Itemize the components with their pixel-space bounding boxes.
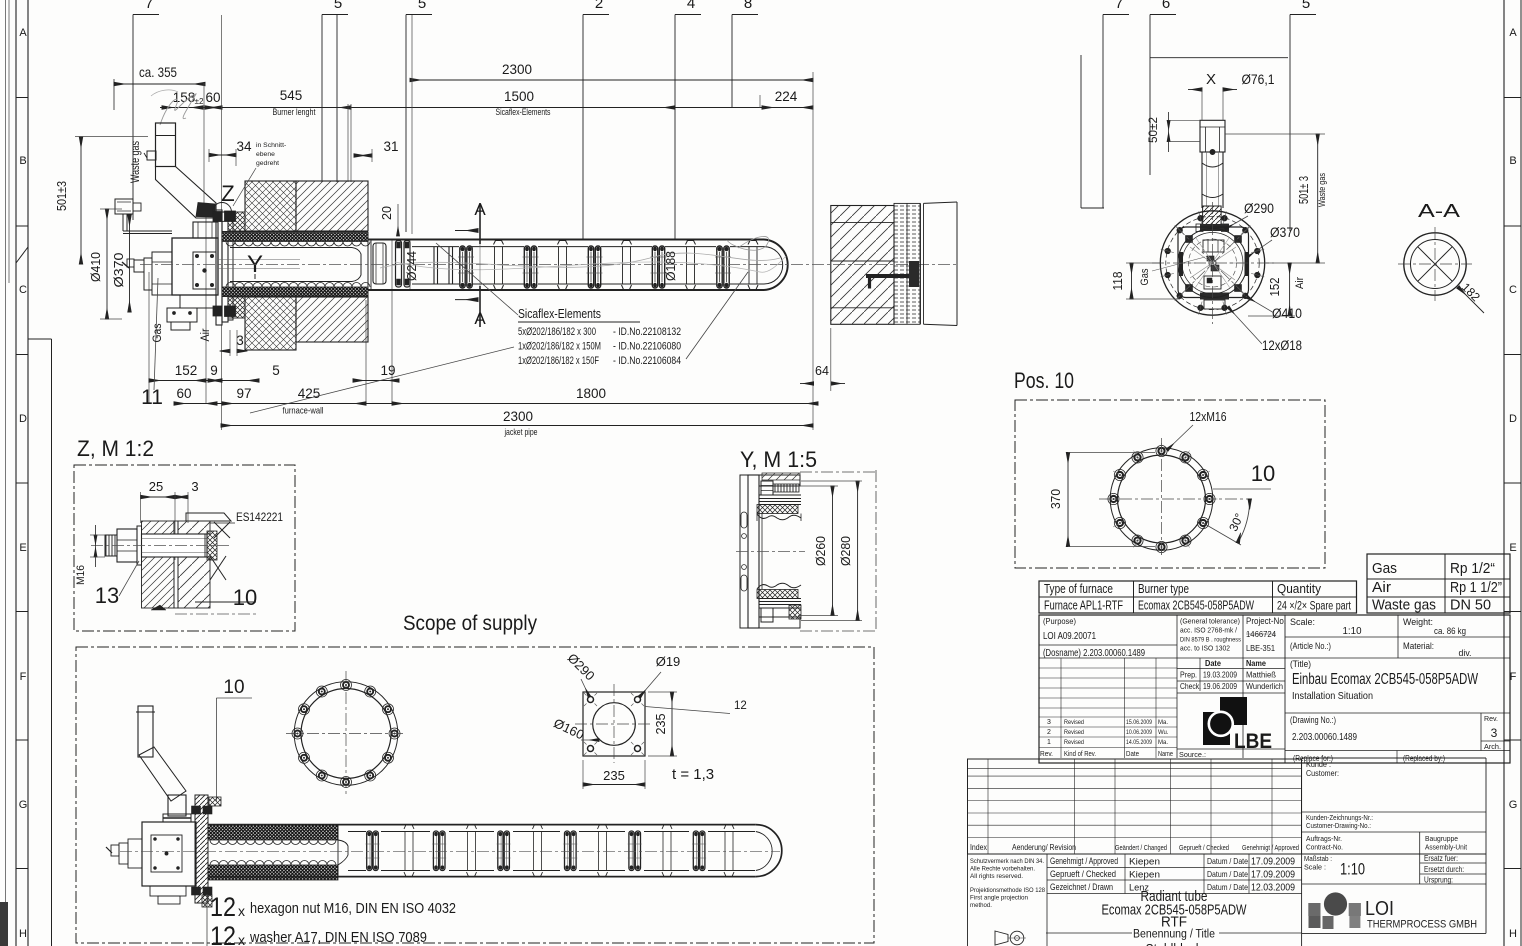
svg-text:Geprueft / Checked: Geprueft / Checked bbox=[1179, 843, 1229, 852]
svg-text:Wunderlich: Wunderlich bbox=[1246, 682, 1283, 691]
svg-text:12.03.2009: 12.03.2009 bbox=[1251, 883, 1295, 894]
svg-text:5: 5 bbox=[1302, 0, 1310, 12]
svg-text:Gas: Gas bbox=[1372, 560, 1397, 577]
svg-text:Kunde :: Kunde : bbox=[1306, 760, 1331, 769]
svg-text:17.09.2009: 17.09.2009 bbox=[1251, 870, 1295, 881]
svg-text:Prep.: Prep. bbox=[1180, 671, 1197, 680]
svg-text:Date: Date bbox=[1205, 658, 1221, 668]
svg-text:t = 1,3: t = 1,3 bbox=[672, 766, 714, 783]
svg-text:6: 6 bbox=[1162, 0, 1170, 12]
svg-text:ES142221: ES142221 bbox=[236, 510, 283, 524]
svg-text:12: 12 bbox=[210, 921, 236, 946]
svg-text:10: 10 bbox=[233, 585, 257, 610]
svg-text:3: 3 bbox=[191, 479, 198, 494]
svg-text:LBE-351: LBE-351 bbox=[1246, 643, 1275, 653]
svg-text:Geändert / Changed: Geändert / Changed bbox=[1115, 843, 1167, 852]
svg-text:235: 235 bbox=[603, 768, 625, 783]
svg-text:G: G bbox=[19, 799, 28, 811]
svg-text:D: D bbox=[1509, 413, 1517, 425]
svg-text:Quantity: Quantity bbox=[1277, 581, 1321, 596]
svg-text:Ursprung:: Ursprung: bbox=[1424, 875, 1453, 885]
svg-text:Scale:: Scale: bbox=[1290, 617, 1315, 627]
svg-text:5: 5 bbox=[334, 0, 342, 12]
svg-text:THERMPROCESS GMBH: THERMPROCESS GMBH bbox=[1367, 919, 1477, 931]
svg-text:furnace-wall: furnace-wall bbox=[283, 406, 324, 417]
svg-text:24 ×/2× Spare part: 24 ×/2× Spare part bbox=[1277, 601, 1352, 613]
svg-text:Matthieß: Matthieß bbox=[1246, 671, 1276, 680]
svg-text:12: 12 bbox=[210, 892, 236, 922]
svg-text:152: 152 bbox=[1268, 277, 1282, 296]
svg-text:235: 235 bbox=[653, 714, 668, 735]
svg-text:Stahlblech: Stahlblech bbox=[1146, 941, 1203, 946]
svg-text:1: 1 bbox=[1047, 739, 1051, 746]
svg-text:224: 224 bbox=[775, 89, 798, 104]
svg-text:x: x bbox=[238, 932, 245, 946]
svg-text:Benennung / Title: Benennung / Title bbox=[1133, 929, 1215, 941]
svg-text:Rev.: Rev. bbox=[1484, 714, 1498, 723]
svg-text:11: 11 bbox=[141, 386, 163, 409]
svg-text:- ID.No.22106080: - ID.No.22106080 bbox=[613, 341, 681, 353]
svg-text:Burner type: Burner type bbox=[1138, 581, 1189, 596]
svg-text:2: 2 bbox=[1047, 729, 1051, 736]
svg-text:10.06.2009: 10.06.2009 bbox=[1126, 730, 1153, 736]
svg-text:Ø370: Ø370 bbox=[1270, 225, 1300, 240]
svg-text:12xØ18: 12xØ18 bbox=[1262, 338, 1302, 353]
svg-text:4: 4 bbox=[687, 0, 695, 12]
svg-text:20: 20 bbox=[380, 206, 394, 220]
svg-text:17.09.2009: 17.09.2009 bbox=[1251, 857, 1295, 868]
svg-text:A: A bbox=[474, 309, 486, 328]
svg-text:H: H bbox=[19, 928, 27, 940]
svg-text:F: F bbox=[20, 671, 27, 683]
svg-text:First angle projection: First angle projection bbox=[970, 895, 1029, 902]
svg-text:Installation Situation: Installation Situation bbox=[1292, 690, 1373, 702]
svg-text:31: 31 bbox=[383, 139, 398, 154]
svg-text:(Title): (Title) bbox=[1290, 659, 1311, 669]
svg-text:Waste gas: Waste gas bbox=[130, 141, 142, 183]
svg-text:13: 13 bbox=[95, 583, 119, 608]
svg-text:501± 3: 501± 3 bbox=[1297, 176, 1311, 204]
svg-text:5: 5 bbox=[272, 363, 280, 378]
svg-text:ca. 355: ca. 355 bbox=[139, 64, 177, 80]
svg-text:Ø244: Ø244 bbox=[405, 251, 419, 281]
svg-text:Kiepen: Kiepen bbox=[1129, 857, 1160, 868]
svg-text:Ø410: Ø410 bbox=[88, 252, 103, 282]
svg-text:Name: Name bbox=[1158, 749, 1173, 758]
svg-text:Revised: Revised bbox=[1064, 730, 1084, 736]
svg-text:10: 10 bbox=[1251, 461, 1275, 486]
svg-text:Weight:: Weight: bbox=[1403, 617, 1433, 627]
svg-text:G: G bbox=[1509, 799, 1518, 811]
svg-text:12xM16: 12xM16 bbox=[1190, 410, 1227, 424]
svg-text:Gas: Gas bbox=[152, 323, 164, 342]
svg-text:div.: div. bbox=[1459, 648, 1472, 659]
svg-text:Ersetzt durch:: Ersetzt durch: bbox=[1424, 864, 1464, 874]
svg-text:Scope of supply: Scope of supply bbox=[403, 612, 537, 635]
svg-text:A-A: A-A bbox=[1418, 201, 1460, 221]
svg-text:Ersatz fuer:: Ersatz fuer: bbox=[1424, 853, 1458, 863]
svg-text:2300: 2300 bbox=[502, 62, 532, 77]
svg-text:14.05.2009: 14.05.2009 bbox=[1126, 740, 1153, 746]
svg-text:- ID.No.22108132: - ID.No.22108132 bbox=[613, 326, 681, 338]
svg-text:19: 19 bbox=[380, 363, 395, 378]
svg-text:5xØ202/186/182 x 300: 5xØ202/186/182 x 300 bbox=[518, 326, 596, 338]
svg-text:Wu.: Wu. bbox=[1158, 730, 1169, 736]
svg-text:25: 25 bbox=[149, 479, 163, 494]
svg-text:118: 118 bbox=[1111, 271, 1125, 290]
svg-text:Aenderung/ Revision: Aenderung/ Revision bbox=[1012, 843, 1076, 852]
svg-text:D: D bbox=[19, 413, 27, 425]
svg-text:1xØ202/186/182 x 150M: 1xØ202/186/182 x 150M bbox=[518, 341, 601, 353]
svg-text:Customer-Drawing-No.:: Customer-Drawing-No.: bbox=[1306, 823, 1371, 830]
svg-text:Type of furnace: Type of furnace bbox=[1044, 581, 1113, 596]
svg-text:19.06.2009: 19.06.2009 bbox=[1203, 682, 1237, 691]
svg-text:acc. to ISO 1302: acc. to ISO 1302 bbox=[1180, 644, 1230, 653]
svg-text:Ø76,1: Ø76,1 bbox=[1242, 72, 1275, 87]
svg-text:gedreht: gedreht bbox=[256, 160, 279, 167]
svg-text:ca. 86 kg: ca. 86 kg bbox=[1434, 626, 1466, 637]
svg-text:Datum / Date: Datum / Date bbox=[1207, 882, 1248, 892]
svg-text:Waste gas: Waste gas bbox=[1372, 597, 1436, 614]
svg-text:C: C bbox=[1509, 284, 1517, 296]
svg-text:1xØ202/186/182 x 150F: 1xØ202/186/182 x 150F bbox=[518, 355, 599, 367]
svg-text:Ø410: Ø410 bbox=[1272, 306, 1302, 321]
svg-text:60: 60 bbox=[205, 90, 220, 105]
svg-text:hexagon nut M16, DIN EN ISO 40: hexagon nut M16, DIN EN ISO 4032 bbox=[250, 900, 456, 917]
svg-text:97: 97 bbox=[236, 386, 251, 401]
svg-text:Date: Date bbox=[1126, 749, 1139, 758]
svg-text:9: 9 bbox=[210, 363, 218, 378]
svg-text:Ma.: Ma. bbox=[1158, 740, 1168, 746]
svg-text:Projektionsmethode ISO 128: Projektionsmethode ISO 128 bbox=[970, 887, 1046, 894]
svg-text:Air: Air bbox=[1294, 277, 1306, 289]
svg-text:A: A bbox=[19, 27, 27, 39]
svg-text:1:10: 1:10 bbox=[1340, 860, 1365, 879]
svg-text:Project-No.: Project-No. bbox=[1246, 616, 1286, 626]
svg-text:1500: 1500 bbox=[504, 89, 534, 104]
svg-text:10: 10 bbox=[223, 677, 244, 698]
svg-text:7: 7 bbox=[145, 0, 153, 12]
svg-text:1:10: 1:10 bbox=[1343, 625, 1362, 637]
svg-text:3: 3 bbox=[1491, 726, 1498, 740]
svg-text:152: 152 bbox=[175, 363, 198, 378]
svg-text:(Article No.:): (Article No.:) bbox=[1290, 641, 1331, 651]
svg-text:Material:: Material: bbox=[1403, 641, 1434, 651]
svg-text:3: 3 bbox=[1047, 719, 1051, 726]
svg-text:Geprueft / Checked: Geprueft / Checked bbox=[1050, 869, 1116, 879]
svg-text:Ø370: Ø370 bbox=[111, 253, 126, 288]
svg-text:E: E bbox=[1509, 542, 1516, 554]
svg-text:Assembly-Unit: Assembly-Unit bbox=[1425, 843, 1468, 852]
svg-text:Genehmigt / Approved: Genehmigt / Approved bbox=[1050, 856, 1118, 866]
svg-text:(Drawing No.:): (Drawing No.:) bbox=[1290, 715, 1336, 725]
svg-text:Y, M 1:5: Y, M 1:5 bbox=[740, 447, 817, 472]
svg-text:Kunden-Zeichnungs-Nr.:: Kunden-Zeichnungs-Nr.: bbox=[1306, 815, 1373, 822]
svg-text:Ø280: Ø280 bbox=[838, 536, 853, 566]
svg-text:DN 50: DN 50 bbox=[1450, 598, 1491, 614]
svg-text:Ø290: Ø290 bbox=[1244, 201, 1274, 216]
svg-text:19.03.2009: 19.03.2009 bbox=[1203, 671, 1237, 680]
svg-text:60: 60 bbox=[176, 386, 191, 401]
svg-text:LOI: LOI bbox=[1365, 898, 1394, 920]
svg-text:Furnace APL1-RTF: Furnace APL1-RTF bbox=[1044, 598, 1123, 613]
svg-text:(General tolerance): (General tolerance) bbox=[1180, 617, 1240, 626]
svg-text:1800: 1800 bbox=[576, 386, 606, 401]
svg-text:Datum / Date: Datum / Date bbox=[1207, 869, 1248, 879]
svg-text:jacket pipe: jacket pipe bbox=[504, 427, 538, 438]
svg-text:8: 8 bbox=[744, 0, 752, 12]
svg-text:M16: M16 bbox=[75, 565, 87, 585]
svg-text:washer A17, DIN EN ISO 7089: washer A17, DIN EN ISO 7089 bbox=[249, 929, 427, 946]
svg-text:12: 12 bbox=[734, 700, 747, 712]
svg-text:Burner lenght: Burner lenght bbox=[273, 107, 316, 118]
svg-text:method.: method. bbox=[970, 902, 992, 909]
svg-text:- ID.No.22106084: - ID.No.22106084 bbox=[613, 355, 681, 367]
svg-text:Index: Index bbox=[970, 843, 987, 852]
svg-text:in Schnitt-: in Schnitt- bbox=[256, 142, 286, 149]
svg-text:545: 545 bbox=[280, 88, 303, 103]
svg-text:Ø260: Ø260 bbox=[813, 536, 828, 566]
svg-text:501±3: 501±3 bbox=[54, 181, 69, 211]
svg-text:Z: Z bbox=[221, 181, 234, 206]
svg-text:370: 370 bbox=[1048, 489, 1063, 509]
svg-text:Ma.: Ma. bbox=[1158, 720, 1168, 726]
svg-text:(Dosname) 2.203.00060.1489: (Dosname) 2.203.00060.1489 bbox=[1043, 648, 1145, 659]
svg-text:Revised: Revised bbox=[1064, 720, 1084, 726]
svg-text:Kiepen: Kiepen bbox=[1129, 870, 1160, 881]
svg-text:Rp 1/2“: Rp 1/2“ bbox=[1450, 561, 1495, 577]
svg-text:Rp 1 1/2”: Rp 1 1/2” bbox=[1450, 580, 1502, 596]
svg-text:X: X bbox=[1206, 71, 1216, 88]
svg-text:64: 64 bbox=[815, 364, 829, 378]
svg-text:Check.: Check. bbox=[1180, 682, 1201, 691]
svg-text:Arch.: Arch. bbox=[1484, 742, 1501, 751]
svg-text:LBE: LBE bbox=[1234, 730, 1272, 753]
svg-text:7: 7 bbox=[1115, 0, 1123, 12]
svg-text:3: 3 bbox=[236, 333, 244, 348]
svg-text:acc. ISO 2768-mk /: acc. ISO 2768-mk / bbox=[1180, 626, 1238, 635]
svg-text:(Purpose): (Purpose) bbox=[1043, 616, 1076, 626]
svg-text:B: B bbox=[19, 155, 26, 167]
svg-text:LOI A09.20071: LOI A09.20071 bbox=[1043, 631, 1096, 642]
svg-text:2.203.00060.1489: 2.203.00060.1489 bbox=[1292, 731, 1357, 743]
svg-text:Sicaflex-Elements: Sicaflex-Elements bbox=[496, 107, 551, 117]
svg-text:±2: ±2 bbox=[195, 97, 204, 106]
svg-text:E: E bbox=[19, 542, 26, 554]
svg-text:DIN 8579 B . roughness: DIN 8579 B . roughness bbox=[1180, 637, 1242, 644]
svg-text:H: H bbox=[1509, 928, 1517, 940]
svg-text:Sicaflex-Elements: Sicaflex-Elements bbox=[518, 307, 601, 321]
svg-text:34: 34 bbox=[236, 139, 252, 154]
svg-text:2: 2 bbox=[595, 0, 603, 12]
svg-text:Gezeichnet / Drawn: Gezeichnet / Drawn bbox=[1050, 882, 1113, 892]
svg-text:5: 5 bbox=[418, 0, 426, 12]
svg-text:A: A bbox=[474, 200, 486, 219]
svg-text:All rights reserved.: All rights reserved. bbox=[970, 873, 1023, 880]
svg-text:ebene: ebene bbox=[256, 151, 275, 158]
svg-text:B: B bbox=[1509, 155, 1516, 167]
svg-text:Waste gas: Waste gas bbox=[1317, 173, 1328, 207]
svg-text:Gas: Gas bbox=[1139, 268, 1151, 285]
svg-text:Name: Name bbox=[1246, 658, 1266, 668]
svg-text:Genehmigt / Approved: Genehmigt / Approved bbox=[1242, 843, 1299, 852]
svg-text:Contract-No.: Contract-No. bbox=[1306, 843, 1343, 852]
svg-text:x: x bbox=[238, 903, 245, 919]
svg-text:Revised: Revised bbox=[1064, 740, 1084, 746]
svg-text:Air: Air bbox=[200, 328, 212, 341]
svg-text:C: C bbox=[19, 284, 27, 296]
svg-text:Customer:: Customer: bbox=[1306, 769, 1339, 778]
svg-text:2300: 2300 bbox=[503, 409, 533, 424]
svg-text:Schutzvermerk nach DIN 34.: Schutzvermerk nach DIN 34. bbox=[970, 858, 1044, 865]
svg-text:Source.:: Source.: bbox=[1179, 750, 1206, 759]
svg-text:Ø19: Ø19 bbox=[656, 654, 681, 669]
svg-text:A: A bbox=[1509, 27, 1517, 39]
svg-text:Rev.: Rev. bbox=[1040, 751, 1053, 758]
svg-text:Z, M 1:2: Z, M 1:2 bbox=[77, 436, 154, 461]
svg-text:Einbau Ecomax 2CB545-058P5ADW: Einbau Ecomax 2CB545-058P5ADW bbox=[1292, 671, 1478, 688]
svg-text:Ecomax 2CB545-058P5ADW: Ecomax 2CB545-058P5ADW bbox=[1138, 598, 1254, 613]
svg-text:Datum / Date: Datum / Date bbox=[1207, 856, 1248, 866]
svg-text:425: 425 bbox=[298, 386, 321, 401]
svg-text:Alle Rechte vorbehalten.: Alle Rechte vorbehalten. bbox=[970, 866, 1035, 873]
svg-text:Pos. 10: Pos. 10 bbox=[1014, 368, 1074, 393]
svg-text:Ø188: Ø188 bbox=[664, 251, 678, 281]
svg-text:15.06.2009: 15.06.2009 bbox=[1126, 720, 1153, 726]
svg-text:50±2: 50±2 bbox=[1148, 117, 1160, 143]
svg-text:Kind of Rev.: Kind of Rev. bbox=[1064, 749, 1096, 758]
svg-text:Air: Air bbox=[1372, 579, 1391, 596]
svg-text:Scale :: Scale : bbox=[1304, 863, 1326, 872]
svg-text:F: F bbox=[1510, 671, 1517, 683]
